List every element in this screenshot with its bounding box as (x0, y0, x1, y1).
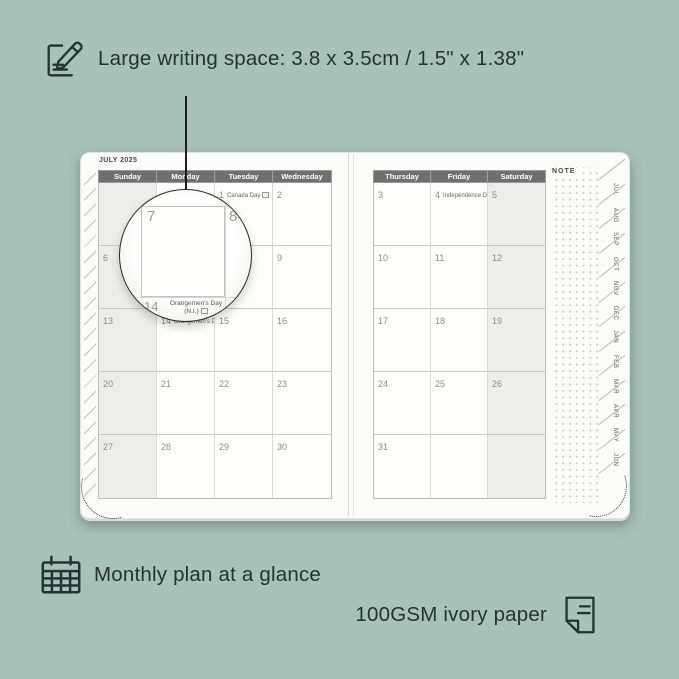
date-number: 28 (161, 442, 171, 452)
holiday-label: Independence Day (443, 193, 488, 199)
date-number: 30 (277, 442, 287, 452)
magnified-date-7: 7 (147, 208, 155, 225)
calendar-cell: 31 (374, 435, 431, 498)
calendar-cell: 2 (273, 183, 331, 246)
magnified-grid-line (120, 297, 251, 298)
date-number: 2 (277, 190, 282, 200)
paper-icon (557, 592, 603, 638)
date-number: 5 (492, 190, 497, 200)
calendar-cell: 4Independence Day (431, 183, 488, 246)
calendar-cell: 23 (273, 372, 331, 435)
magnified-grid-line (225, 194, 226, 317)
month-tabs: JULAUGSEPOCTNOVDECJANFEBMARAPRMAYJUN (597, 153, 629, 518)
date-number: 31 (378, 442, 388, 452)
date-number: 11 (435, 253, 444, 263)
feature-monthly-plan: Monthly plan at a glance (38, 552, 321, 598)
day-header-sunday: Sunday (99, 171, 157, 182)
day-header-tuesday: Tuesday (215, 171, 273, 182)
calendar-cell: 19 (488, 309, 545, 372)
calendar-cell: 9 (273, 246, 331, 309)
callout-pointer-line (185, 96, 187, 196)
calendar-cell: 12 (488, 246, 545, 309)
calendar-cell: 5 (488, 183, 545, 246)
date-number: 16 (277, 316, 287, 326)
date-number: 12 (492, 253, 502, 263)
paper-text: 100GSM ivory paper (355, 603, 547, 627)
note-dot-grid (551, 167, 599, 503)
date-number: 20 (103, 379, 113, 389)
date-number: 22 (219, 379, 229, 389)
pencil-note-icon (42, 36, 88, 82)
calendar-cell: 26 (488, 372, 545, 435)
flag-icon (262, 192, 269, 198)
perforation-arc-bottom-right (589, 475, 633, 519)
date-number: 24 (378, 379, 388, 389)
calendar-cell: 21 (157, 372, 215, 435)
date-number: 29 (219, 442, 229, 452)
date-number: 15 (219, 316, 229, 326)
day-header-saturday: Saturday (488, 171, 545, 182)
holiday-label: Canada Day (227, 193, 269, 199)
calendar-cell: 18 (431, 309, 488, 372)
note-label: NOTE (552, 168, 578, 175)
perforation-arc-bottom-left (77, 478, 121, 520)
calendar-cell: 3 (374, 183, 431, 246)
calendar-icon (38, 552, 84, 598)
calendar-cell: 25 (431, 372, 488, 435)
feature-paper: 100GSM ivory paper (355, 592, 603, 638)
calendar-cell: 30 (273, 435, 331, 498)
calendar-cell: 28 (157, 435, 215, 498)
day-header-friday: Friday (431, 171, 488, 182)
calendar-cell: 17 (374, 309, 431, 372)
date-number: 19 (492, 316, 502, 326)
binding-hatch-decoration (84, 173, 96, 499)
calendar-cell: 29 (215, 435, 273, 498)
calendar-cell: 15 (215, 309, 273, 372)
date-number: 10 (378, 253, 388, 263)
date-number: 27 (103, 442, 113, 452)
calendar-cell: 10 (374, 246, 431, 309)
feature-writing-space: Large writing space: 3.8 x 3.5cm / 1.5" … (42, 36, 524, 82)
magnified-date-14: 14 (144, 299, 158, 314)
day-header-wednesday: Wednesday (273, 171, 331, 182)
date-number: 25 (435, 379, 445, 389)
date-number: 21 (161, 379, 171, 389)
right-day-headers: ThursdayFridaySaturday (373, 170, 546, 183)
writing-space-text: Large writing space: 3.8 x 3.5cm / 1.5" … (98, 47, 524, 71)
date-number: 23 (277, 379, 287, 389)
date-number: 17 (378, 316, 388, 326)
date-number: 4 (435, 190, 440, 200)
magnified-date-8: 8 (229, 208, 237, 225)
product-image: Large writing space: 3.8 x 3.5cm / 1.5" … (0, 0, 679, 679)
calendar-cell: 16 (273, 309, 331, 372)
tab-separator (599, 159, 626, 180)
date-number: 3 (378, 190, 383, 200)
date-number: 26 (492, 379, 502, 389)
flag-icon (201, 308, 208, 314)
left-day-headers: SundayMondayTuesdayWednesday (98, 170, 332, 183)
monthly-plan-text: Monthly plan at a glance (94, 563, 321, 587)
calendar-cell: 22 (215, 372, 273, 435)
calendar-cell: 20 (99, 372, 157, 435)
calendar-cell: 11 (431, 246, 488, 309)
page-right-grid: ThursdayFridaySaturday 34Independence Da… (373, 170, 546, 499)
date-number: 6 (103, 253, 108, 263)
date-number: 13 (103, 316, 113, 326)
page-gutter (348, 154, 354, 516)
calendar-cell (431, 435, 488, 498)
date-number: 9 (277, 253, 282, 263)
magnifier-circle: 7 8 14 Orangemen's Day (N.I.) (119, 189, 252, 322)
date-number: 18 (435, 316, 445, 326)
calendar-cell: 24 (374, 372, 431, 435)
day-header-thursday: Thursday (374, 171, 431, 182)
magnified-holiday-label: Orangemen's Day (N.I.) (160, 300, 232, 316)
right-cells: 34Independence Day510111217181924252631 (373, 183, 546, 499)
calendar-cell: 13 (99, 309, 157, 372)
calendar-cell (488, 435, 545, 498)
month-title: JULY 2025 (99, 157, 137, 164)
